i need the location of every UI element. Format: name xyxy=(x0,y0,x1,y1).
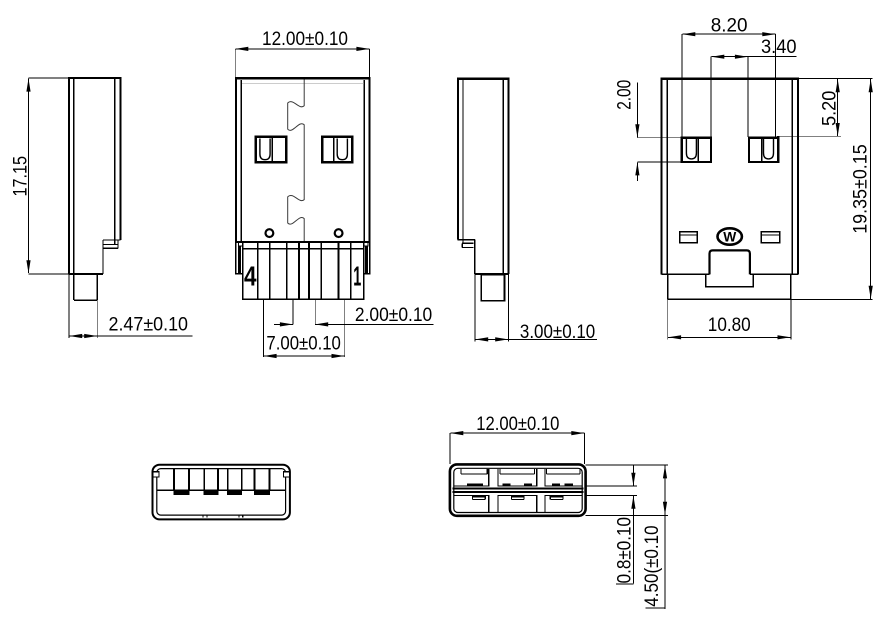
svg-text:8.20: 8.20 xyxy=(711,16,748,37)
svg-text:W: W xyxy=(723,229,737,245)
svg-text:2.00±0.10: 2.00±0.10 xyxy=(355,305,432,326)
svg-text:0.8±0.10: 0.8±0.10 xyxy=(614,517,635,583)
svg-text:12.00±0.10: 12.00±0.10 xyxy=(262,29,348,50)
svg-text:5.20: 5.20 xyxy=(819,91,840,126)
svg-text:1: 1 xyxy=(353,261,361,292)
svg-text:4.50(±0.10: 4.50(±0.10 xyxy=(642,525,663,606)
svg-text:17.15: 17.15 xyxy=(11,156,32,197)
svg-text:4: 4 xyxy=(244,261,257,292)
svg-text:19.35±0.15: 19.35±0.15 xyxy=(850,144,871,234)
svg-text:7.00±0.10: 7.00±0.10 xyxy=(266,334,341,355)
svg-text:3.40: 3.40 xyxy=(761,37,797,58)
svg-text:10.80: 10.80 xyxy=(708,315,751,336)
svg-text:12.00±0.10: 12.00±0.10 xyxy=(476,414,559,435)
svg-text:3.00±0.10: 3.00±0.10 xyxy=(520,322,595,343)
svg-text:2.00: 2.00 xyxy=(615,80,636,110)
svg-text:2.47±0.10: 2.47±0.10 xyxy=(109,314,189,335)
